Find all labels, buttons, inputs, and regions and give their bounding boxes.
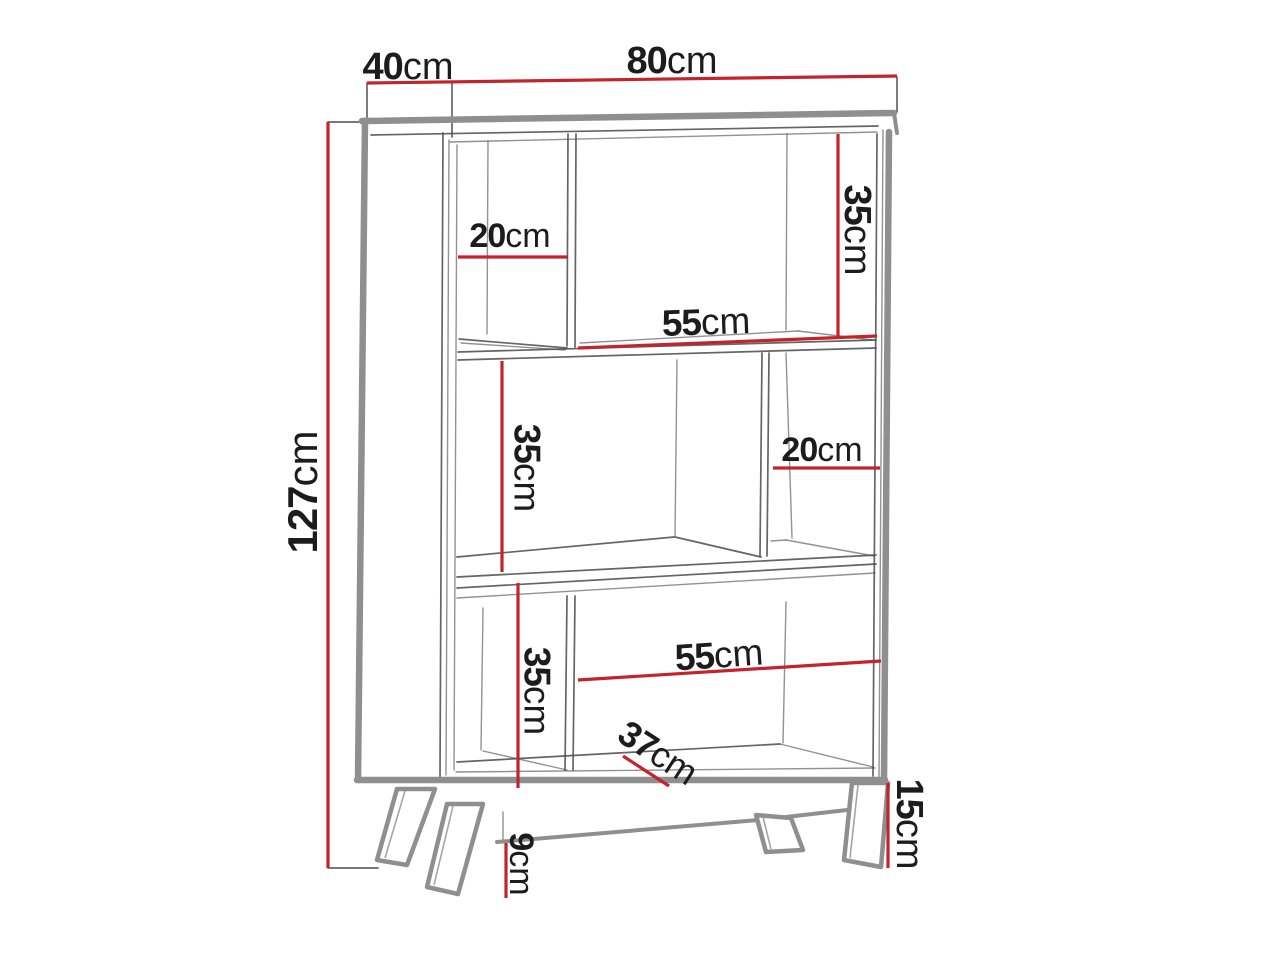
bookcase-line-drawing: [0, 0, 1280, 960]
dim-label-middle-right-width: 20cm: [781, 433, 862, 467]
dim-label-middle-left-height: 35cm: [509, 424, 546, 512]
dim-label-depth: 40cm: [363, 48, 454, 86]
dim-label-bottom-shelf-span: 55cm: [674, 633, 765, 676]
dim-label-height: 127cm: [282, 430, 324, 553]
cabinet-sketch-lines: [328, 77, 897, 868]
dim-label-top-right-height: 35cm: [838, 185, 876, 276]
dimension-lines: [328, 76, 897, 898]
dim-label-under-clearance: 9cm: [504, 832, 538, 895]
dim-label-top-shelf-span: 55cm: [661, 302, 751, 342]
back-right-leg: [756, 815, 803, 852]
dim-label-width: 80cm: [627, 42, 718, 80]
legs: [377, 783, 888, 894]
dim-label-leg-height: 15cm: [890, 779, 928, 870]
dim-label-top-left-width: 20cm: [469, 219, 550, 253]
dim-label-bottom-left-height: 35cm: [519, 647, 556, 735]
furniture-dimension-diagram: 40cm 80cm 127cm 35cm 20cm 55cm 35cm 20cm…: [0, 0, 1280, 960]
